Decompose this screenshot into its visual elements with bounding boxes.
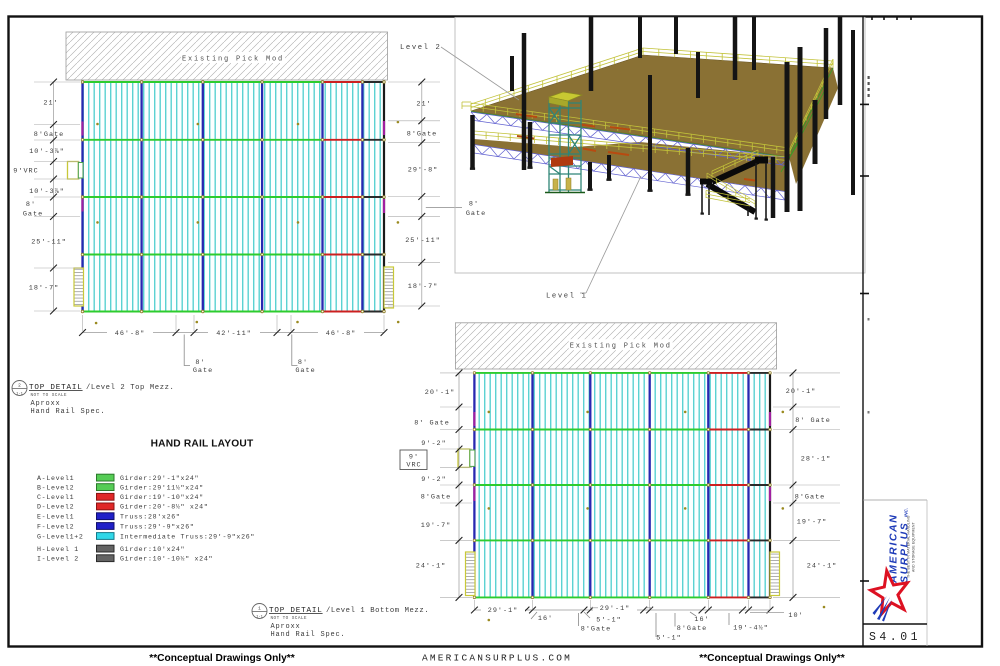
svg-text:24'-1": 24'-1"	[807, 563, 837, 571]
svg-text:8'Gate: 8'Gate	[677, 625, 707, 633]
svg-text:9'-2": 9'-2"	[421, 440, 446, 448]
svg-text:Girder:10'-10½" x24": Girder:10'-10½" x24"	[120, 555, 213, 563]
svg-text:25'-11": 25'-11"	[31, 239, 67, 247]
svg-text:21': 21'	[416, 101, 431, 109]
svg-text:8': 8'	[298, 359, 308, 367]
svg-text:Gate: Gate	[295, 367, 315, 375]
svg-text:10'-3⅞": 10'-3⅞"	[29, 148, 65, 156]
svg-text:AND STORAGE EQUIPMENT: AND STORAGE EQUIPMENT	[912, 522, 916, 572]
svg-text:S4.01: S4.01	[869, 631, 921, 644]
svg-text:C-Level1: C-Level1	[37, 494, 74, 501]
svg-text:8'Gate: 8'Gate	[34, 131, 64, 139]
svg-text:42'-11": 42'-11"	[216, 330, 252, 338]
svg-text:46'-8": 46'-8"	[326, 330, 356, 338]
svg-text:Existing Pick Mod: Existing Pick Mod	[570, 343, 672, 351]
svg-text:G-Level1+2: G-Level1+2	[37, 533, 84, 540]
svg-text:29'-1": 29'-1"	[488, 607, 518, 615]
svg-text:2: 2	[18, 383, 21, 389]
svg-text:TOP DETAIL: TOP DETAIL	[29, 384, 83, 392]
svg-text:Gate: Gate	[193, 367, 213, 375]
svg-text:8'Gate: 8'Gate	[795, 494, 825, 502]
svg-text:9': 9'	[409, 454, 419, 462]
svg-text:18'-7": 18'-7"	[29, 285, 59, 293]
svg-text:A-Level1: A-Level1	[37, 475, 74, 482]
svg-text:25'-11": 25'-11"	[405, 237, 441, 245]
svg-text:AMERICANSURPLUS.COM: AMERICANSURPLUS.COM	[422, 653, 572, 664]
svg-text:Level 2: Level 2	[400, 44, 441, 52]
svg-text:**Conceptual Drawings Only**: **Conceptual Drawings Only**	[699, 653, 845, 664]
svg-text:/Level 1 Bottom Mezz.: /Level 1 Bottom Mezz.	[326, 607, 429, 615]
svg-text:10'-3⅞": 10'-3⅞"	[29, 188, 65, 196]
svg-text:**Conceptual Drawings Only**: **Conceptual Drawings Only**	[149, 653, 295, 664]
svg-text:TOP DETAIL: TOP DETAIL	[269, 607, 323, 615]
svg-text:28'-1": 28'-1"	[801, 456, 831, 464]
svg-text:8': 8'	[469, 201, 479, 209]
svg-text:Girder:20'-8½" x24": Girder:20'-8½" x24"	[120, 503, 208, 511]
svg-text:Girder:10'x24": Girder:10'x24"	[120, 546, 185, 553]
svg-text:8': 8'	[195, 359, 205, 367]
svg-text:1-1: 1-1	[256, 616, 264, 620]
svg-text:29'-1": 29'-1"	[600, 605, 630, 613]
svg-text:VRC: VRC	[406, 462, 421, 470]
svg-text:5'-1": 5'-1"	[596, 617, 621, 625]
svg-text:16': 16'	[538, 615, 553, 623]
svg-text:18'-7": 18'-7"	[408, 283, 438, 291]
svg-text:NOT TO SCALE: NOT TO SCALE	[271, 616, 307, 621]
svg-text:I-Level 2: I-Level 2	[37, 556, 79, 563]
svg-text:HAND RAIL LAYOUT: HAND RAIL LAYOUT	[151, 439, 254, 450]
svg-text:/Level 2 Top Mezz.: /Level 2 Top Mezz.	[86, 384, 174, 392]
svg-text:Gate: Gate	[466, 210, 486, 218]
svg-text:9'-2": 9'-2"	[421, 476, 446, 484]
svg-text:Level 1: Level 1	[546, 293, 587, 301]
svg-text:E-Level1: E-Level1	[37, 514, 74, 521]
svg-text:Aproxx: Aproxx	[271, 623, 301, 631]
svg-text:Hand Rail Spec.: Hand Rail Spec.	[31, 408, 106, 416]
svg-text:F-Level2: F-Level2	[37, 523, 74, 530]
svg-text:16': 16'	[694, 616, 709, 624]
svg-text:THE BEST IN MATERIAL HANDLING: THE BEST IN MATERIAL HANDLING	[907, 515, 911, 578]
svg-text:D-Level2: D-Level2	[37, 504, 74, 511]
svg-text:8'Gate: 8'Gate	[581, 626, 611, 634]
svg-text:8'Gate: 8'Gate	[421, 494, 451, 502]
svg-text:Gate: Gate	[23, 211, 43, 219]
svg-text:10': 10'	[788, 612, 803, 620]
svg-text:1: 1	[258, 606, 261, 612]
svg-text:NOT TO SCALE: NOT TO SCALE	[31, 393, 67, 398]
svg-text:19'-4½": 19'-4½"	[733, 624, 769, 633]
svg-text:8': 8'	[26, 201, 36, 209]
svg-text:8'Gate: 8'Gate	[407, 131, 437, 139]
svg-text:Hand Rail Spec.: Hand Rail Spec.	[271, 631, 346, 639]
svg-text:46'-8": 46'-8"	[115, 330, 145, 338]
svg-text:24'-1": 24'-1"	[416, 563, 446, 571]
svg-text:Girder:29'-1"x24": Girder:29'-1"x24"	[120, 475, 199, 482]
svg-text:Girder:19'-10"x24": Girder:19'-10"x24"	[120, 494, 204, 501]
svg-text:Girder:29'11½"x24": Girder:29'11½"x24"	[120, 483, 204, 491]
svg-text:B-Level2: B-Level2	[37, 484, 74, 491]
svg-text:29'-8": 29'-8"	[408, 167, 438, 175]
svg-text:8' Gate: 8' Gate	[414, 420, 450, 428]
svg-text:9'VRC: 9'VRC	[13, 168, 38, 176]
svg-text:5'-1": 5'-1"	[656, 635, 681, 643]
svg-text:1-1: 1-1	[16, 393, 24, 397]
svg-text:Truss:29'-9"x26": Truss:29'-9"x26"	[120, 523, 195, 530]
svg-text:19'-7": 19'-7"	[421, 522, 451, 530]
svg-text:19'-7": 19'-7"	[797, 519, 827, 527]
svg-text:21': 21'	[43, 100, 58, 108]
svg-text:Existing Pick Mod: Existing Pick Mod	[182, 56, 284, 64]
svg-text:Intermediate Truss:29'-9"x26": Intermediate Truss:29'-9"x26"	[120, 533, 255, 540]
svg-text:H-Level 1: H-Level 1	[37, 546, 79, 553]
svg-text:Aproxx: Aproxx	[31, 400, 61, 408]
svg-text:20'-1": 20'-1"	[786, 388, 816, 396]
svg-text:8' Gate: 8' Gate	[795, 417, 831, 425]
svg-text:20'-1": 20'-1"	[425, 389, 455, 397]
svg-text:Truss:28'x26": Truss:28'x26"	[120, 514, 181, 521]
